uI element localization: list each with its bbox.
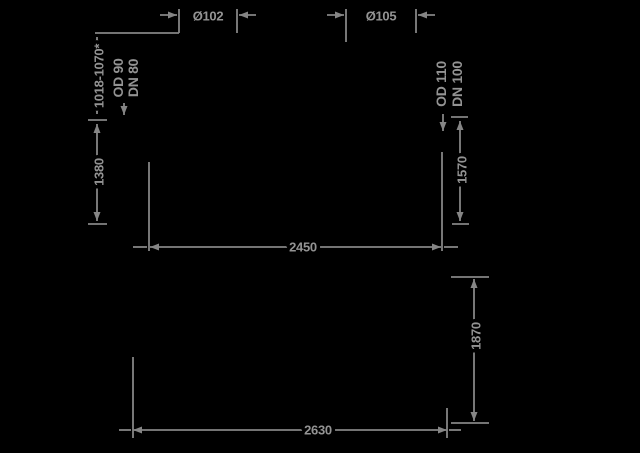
right-nozzle-size-labels: OD 110 DN 100 <box>433 61 465 131</box>
lower-extension-lines <box>133 277 489 438</box>
dim-height-lower: 1870 <box>469 279 484 421</box>
dim-height-right: 1570 <box>451 117 470 224</box>
right-nozzle-dn-label: DN 100 <box>449 61 465 107</box>
dim-width-upper-label: 2450 <box>289 240 317 255</box>
upper-width-extension-lines <box>149 152 442 251</box>
left-nozzle-dn-label: DN 80 <box>125 58 141 97</box>
tank-dimension-drawing: 1018-1070* 1380 OD 90 DN 80 Ø102 Ø105 OD… <box>0 0 640 453</box>
dim-width-lower-label: 2630 <box>304 423 332 438</box>
tank-dimension-drawing-page: 1018-1070* 1380 OD 90 DN 80 Ø102 Ø105 OD… <box>0 0 640 453</box>
dim-hole-left-label: Ø102 <box>193 9 224 24</box>
left-nozzle-size-labels: OD 90 DN 80 <box>110 58 141 115</box>
dim-hole-right: Ø105 <box>327 9 435 43</box>
dim-height-left: 1380 <box>92 124 107 221</box>
dim-width-lower: 2630 <box>119 423 461 438</box>
dim-hole-right-label: Ø105 <box>366 9 397 24</box>
dim-height-right-label: 1570 <box>455 156 470 184</box>
dim-height-range-label: 1018-1070* <box>92 43 107 108</box>
dim-height-left-label: 1380 <box>92 158 107 186</box>
left-nozzle-od-label: OD 90 <box>110 58 126 97</box>
dim-height-range: 1018-1070* <box>92 37 107 114</box>
dim-width-upper: 2450 <box>133 240 458 255</box>
dim-hole-left: Ø102 <box>160 9 256 34</box>
dim-height-lower-label: 1870 <box>469 322 484 350</box>
right-nozzle-od-label: OD 110 <box>433 61 449 107</box>
